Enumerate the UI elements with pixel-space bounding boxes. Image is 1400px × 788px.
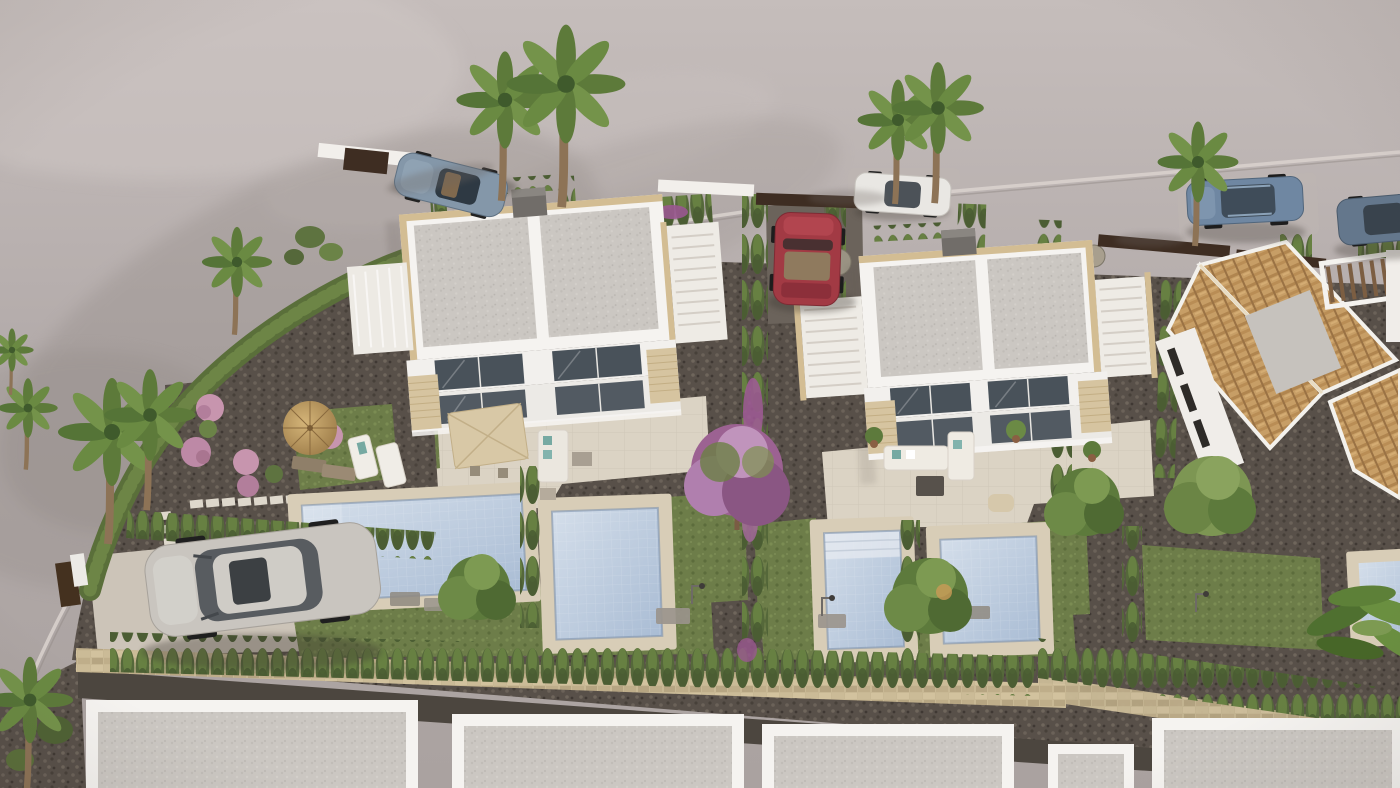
- render-viewport: [0, 0, 1400, 788]
- vignette: [0, 0, 1400, 788]
- aerial-render: [0, 0, 1400, 788]
